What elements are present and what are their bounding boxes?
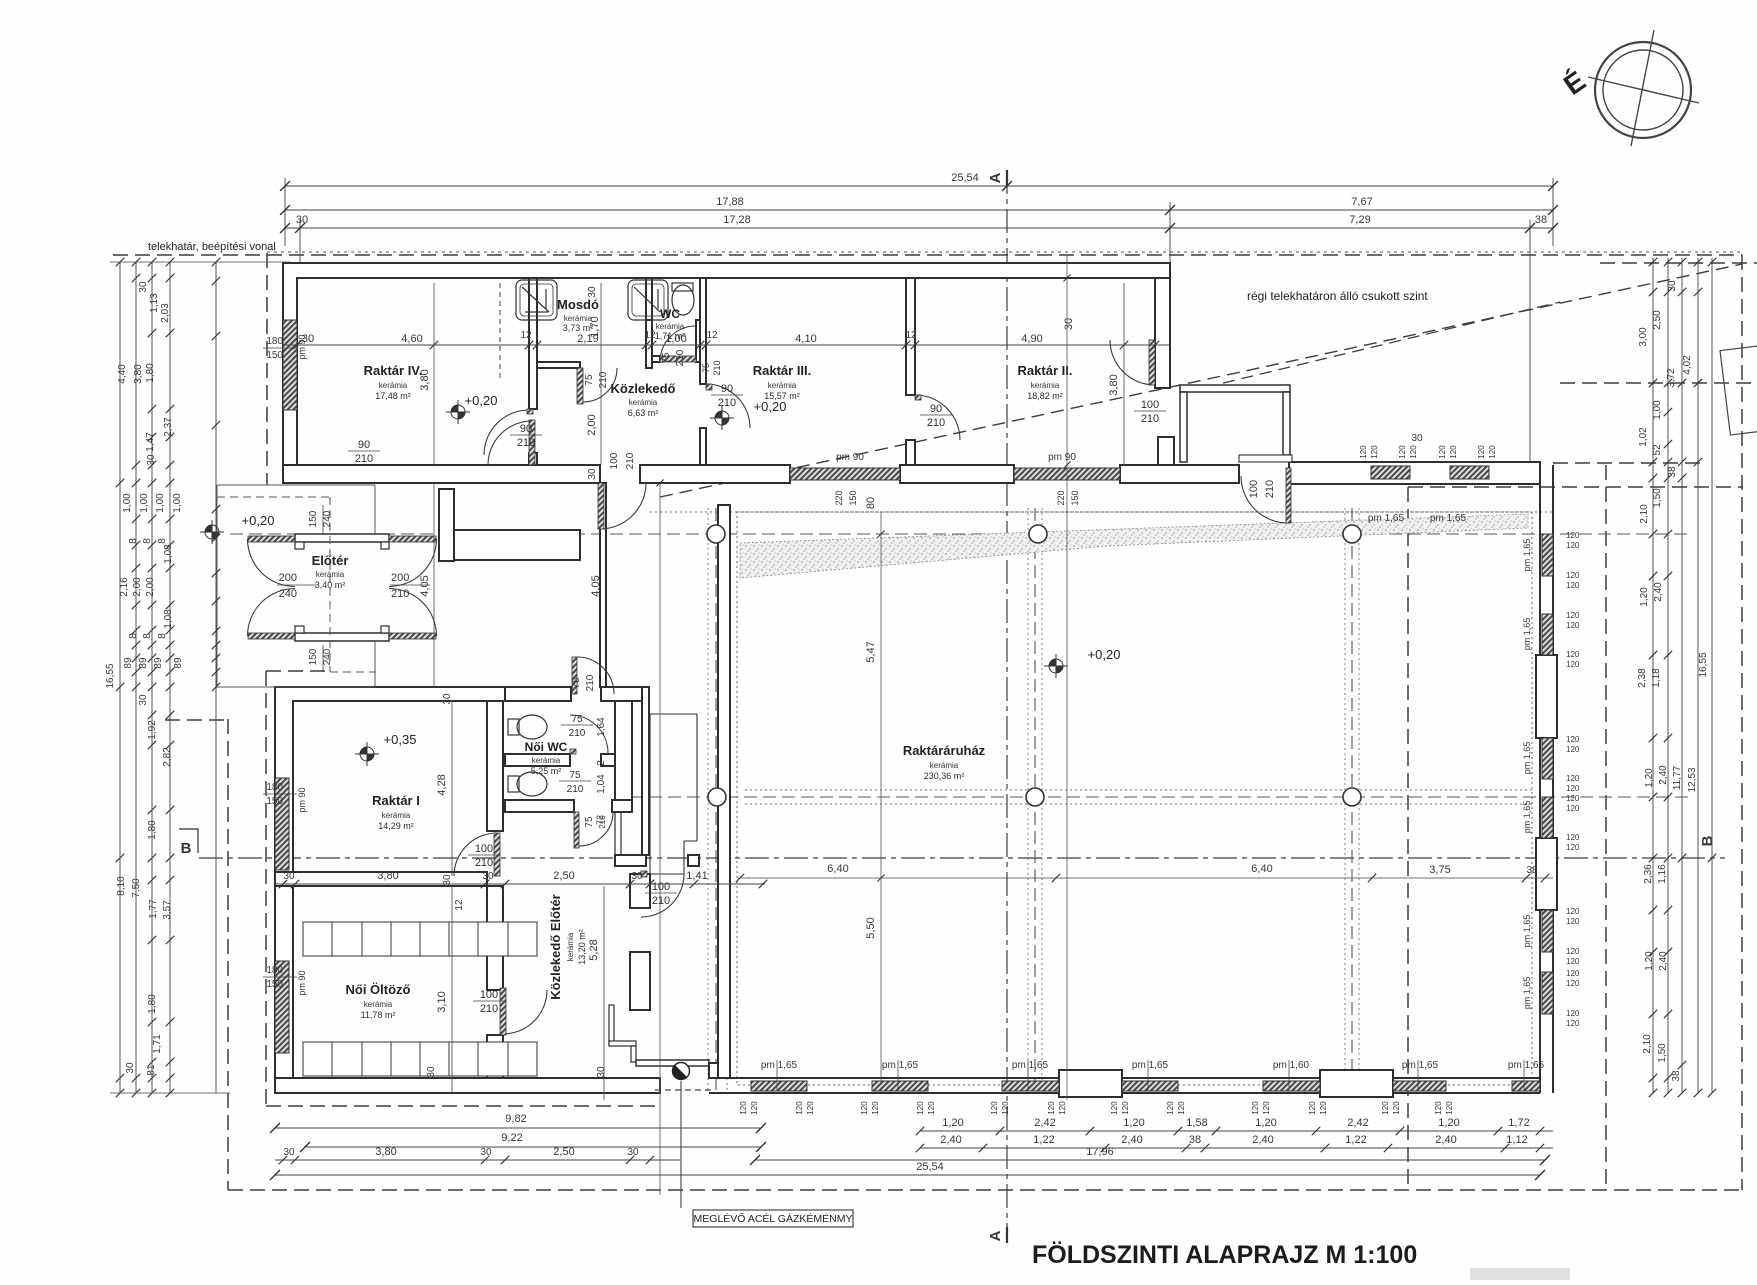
svg-text:pm 1,65: pm 1,65 — [1522, 915, 1532, 948]
svg-text:7,67: 7,67 — [1351, 196, 1372, 208]
svg-text:+0,20: +0,20 — [1088, 647, 1121, 662]
svg-text:Közlekedő Előtér: Közlekedő Előtér — [548, 894, 563, 999]
svg-text:2,42: 2,42 — [1034, 1117, 1055, 1129]
svg-text:120: 120 — [1566, 907, 1580, 916]
svg-text:12: 12 — [454, 899, 465, 911]
svg-text:9,22: 9,22 — [501, 1132, 522, 1144]
svg-text:75: 75 — [569, 770, 581, 781]
svg-text:30: 30 — [1667, 280, 1678, 292]
svg-text:120: 120 — [1566, 735, 1580, 744]
svg-text:3,80: 3,80 — [1108, 374, 1120, 395]
svg-text:230,36 m²: 230,36 m² — [924, 771, 965, 781]
svg-text:1,77: 1,77 — [148, 899, 159, 919]
svg-text:30: 30 — [283, 871, 295, 882]
svg-text:2,16: 2,16 — [119, 577, 130, 597]
svg-text:kerámia: kerámia — [930, 761, 959, 770]
svg-text:4,05: 4,05 — [590, 575, 602, 596]
svg-text:75: 75 — [661, 352, 672, 364]
svg-text:75: 75 — [571, 714, 583, 725]
svg-text:90: 90 — [721, 383, 733, 395]
svg-text:120: 120 — [1110, 1101, 1119, 1115]
svg-text:1,20: 1,20 — [942, 1117, 963, 1129]
svg-text:2,00: 2,00 — [586, 414, 598, 435]
svg-text:210: 210 — [598, 815, 607, 829]
svg-text:1,92: 1,92 — [147, 720, 158, 740]
svg-text:11,77: 11,77 — [1672, 765, 1683, 790]
svg-text:17,88: 17,88 — [716, 196, 744, 208]
svg-text:1,22: 1,22 — [1345, 1134, 1366, 1146]
svg-text:120: 120 — [860, 1101, 869, 1115]
svg-text:120: 120 — [1566, 621, 1580, 630]
svg-text:180: 180 — [266, 336, 283, 347]
svg-text:240: 240 — [322, 510, 333, 527]
svg-text:12: 12 — [905, 330, 917, 341]
svg-text:5,47: 5,47 — [865, 641, 877, 662]
svg-text:30: 30 — [426, 1066, 437, 1078]
svg-text:120: 120 — [1566, 650, 1580, 659]
svg-text:180: 180 — [266, 782, 283, 793]
svg-text:3,75: 3,75 — [1429, 864, 1450, 876]
svg-text:1,50: 1,50 — [1652, 488, 1663, 508]
svg-text:kerámia: kerámia — [532, 756, 561, 765]
svg-text:Közlekedő: Közlekedő — [610, 381, 675, 396]
svg-text:210: 210 — [1264, 480, 1276, 498]
svg-text:200: 200 — [279, 572, 297, 584]
svg-text:Raktár II.: Raktár II. — [1018, 363, 1073, 378]
svg-text:pm 1,60: pm 1,60 — [1273, 1060, 1310, 1071]
svg-text:120: 120 — [1566, 957, 1580, 966]
svg-text:16,55: 16,55 — [1698, 652, 1709, 677]
svg-text:120: 120 — [1566, 917, 1580, 926]
svg-text:120: 120 — [1566, 571, 1580, 580]
svg-text:1,13: 1,13 — [149, 293, 160, 313]
svg-text:Raktáráruház: Raktáráruház — [903, 743, 986, 758]
svg-text:30: 30 — [480, 1147, 492, 1158]
svg-text:7,50: 7,50 — [131, 878, 142, 898]
svg-text:Előtér: Előtér — [312, 553, 349, 568]
svg-text:120: 120 — [1449, 445, 1458, 459]
svg-text:210: 210 — [480, 1003, 498, 1015]
svg-text:240: 240 — [322, 648, 333, 665]
svg-text:B: B — [181, 840, 192, 857]
svg-text:90: 90 — [520, 423, 532, 435]
svg-text:Női Öltöző: Női Öltöző — [346, 982, 411, 997]
svg-text:8: 8 — [142, 538, 153, 544]
svg-text:2,40: 2,40 — [940, 1134, 961, 1146]
svg-text:1,20: 1,20 — [1438, 1117, 1459, 1129]
svg-text:150: 150 — [1070, 490, 1080, 505]
svg-text:210: 210 — [652, 895, 670, 907]
svg-text:1,71: 1,71 — [152, 1034, 163, 1054]
svg-text:+0,20: +0,20 — [465, 393, 498, 408]
svg-text:120: 120 — [916, 1101, 925, 1115]
svg-text:2,40: 2,40 — [1435, 1134, 1456, 1146]
svg-text:120: 120 — [1001, 1101, 1010, 1115]
svg-text:2,40: 2,40 — [1121, 1134, 1142, 1146]
svg-text:38: 38 — [1526, 865, 1538, 876]
svg-text:15,57 m²: 15,57 m² — [764, 391, 800, 401]
svg-text:75: 75 — [701, 363, 711, 373]
svg-text:1,50: 1,50 — [1657, 1043, 1668, 1063]
svg-text:180: 180 — [266, 965, 283, 976]
svg-text:120: 120 — [1566, 611, 1580, 620]
svg-text:1,00: 1,00 — [1652, 400, 1663, 420]
svg-text:120: 120 — [1566, 833, 1580, 842]
svg-text:kerámia: kerámia — [629, 398, 658, 407]
svg-text:1,20: 1,20 — [1123, 1117, 1144, 1129]
svg-text:14,29 m²: 14,29 m² — [378, 821, 414, 831]
svg-text:25,54: 25,54 — [916, 1161, 944, 1173]
svg-text:30: 30 — [138, 281, 149, 293]
svg-text:210: 210 — [517, 437, 535, 449]
svg-text:1,58: 1,58 — [1186, 1117, 1207, 1129]
svg-text:kerámia: kerámia — [656, 322, 685, 331]
svg-text:pm 1,65: pm 1,65 — [1522, 539, 1532, 572]
svg-text:2,40: 2,40 — [1658, 951, 1669, 971]
svg-text:150: 150 — [266, 979, 283, 990]
svg-text:3,57: 3,57 — [162, 900, 173, 920]
svg-text:120: 120 — [1566, 794, 1580, 803]
svg-text:120: 120 — [1445, 1101, 1454, 1115]
svg-text:75: 75 — [584, 374, 595, 386]
svg-text:30: 30 — [1063, 318, 1075, 330]
svg-text:1,16: 1,16 — [1657, 864, 1668, 884]
svg-text:30: 30 — [125, 1062, 136, 1074]
svg-text:210: 210 — [718, 397, 736, 409]
svg-text:210: 210 — [569, 728, 586, 739]
svg-text:1,80: 1,80 — [147, 820, 158, 840]
svg-text:210: 210 — [585, 674, 596, 691]
svg-text:120: 120 — [1409, 445, 1418, 459]
svg-text:MEGLÉVŐ ACÉL GÁZKÉMÉNMY: MEGLÉVŐ ACÉL GÁZKÉMÉNMY — [694, 1211, 853, 1225]
svg-text:120: 120 — [1434, 1101, 1443, 1115]
svg-text:150: 150 — [308, 510, 319, 527]
svg-text:4,90: 4,90 — [1021, 333, 1042, 345]
svg-text:4,28: 4,28 — [436, 774, 448, 795]
svg-text:80: 80 — [865, 497, 877, 509]
svg-text:89: 89 — [173, 657, 184, 669]
svg-text:30: 30 — [596, 1066, 607, 1078]
svg-text:pm 90: pm 90 — [836, 452, 864, 463]
svg-text:200: 200 — [391, 572, 409, 584]
svg-text:A: A — [987, 172, 1004, 183]
svg-text:120: 120 — [927, 1101, 936, 1115]
svg-text:120: 120 — [1262, 1101, 1271, 1115]
svg-text:pm 1,65: pm 1,65 — [1430, 513, 1467, 524]
svg-text:Raktár I: Raktár I — [372, 793, 420, 808]
svg-text:210: 210 — [625, 452, 636, 469]
svg-text:pm 90: pm 90 — [297, 787, 307, 812]
svg-text:120: 120 — [1566, 969, 1580, 978]
svg-text:1,20: 1,20 — [1644, 951, 1655, 971]
svg-text:75: 75 — [571, 677, 582, 689]
svg-text:2,42: 2,42 — [1347, 1117, 1368, 1129]
svg-text:1,18: 1,18 — [1651, 668, 1662, 688]
svg-text:1,00: 1,00 — [665, 333, 686, 345]
svg-text:38: 38 — [1671, 1070, 1682, 1082]
svg-text:120: 120 — [1251, 1101, 1260, 1115]
svg-text:5,25 m²: 5,25 m² — [531, 766, 562, 776]
svg-text:Női WC: Női WC — [525, 740, 568, 754]
svg-text:A: A — [987, 1230, 1004, 1241]
svg-text:220: 220 — [834, 490, 844, 505]
svg-text:52: 52 — [1652, 444, 1663, 456]
svg-text:17,48 m²: 17,48 m² — [375, 391, 411, 401]
svg-text:150: 150 — [266, 350, 283, 361]
svg-text:Mosdó: Mosdó — [557, 297, 599, 312]
svg-text:210: 210 — [598, 371, 609, 388]
svg-text:150: 150 — [308, 648, 319, 665]
svg-text:150: 150 — [848, 490, 858, 505]
svg-text:120: 120 — [1398, 445, 1407, 459]
svg-text:pm 90: pm 90 — [1048, 452, 1076, 463]
svg-text:pm 1,65: pm 1,65 — [1522, 742, 1532, 775]
svg-text:8: 8 — [157, 538, 168, 544]
svg-text:120: 120 — [1566, 531, 1580, 540]
svg-text:1,00: 1,00 — [139, 493, 150, 513]
svg-text:kerámia: kerámia — [379, 381, 408, 390]
svg-text:30: 30 — [296, 214, 308, 226]
svg-text:pm 1,65: pm 1,65 — [882, 1060, 919, 1071]
svg-text:kerámia: kerámia — [382, 811, 411, 820]
svg-text:6,40: 6,40 — [827, 863, 848, 875]
svg-text:pm 1,65: pm 1,65 — [1522, 618, 1532, 651]
svg-text:90: 90 — [930, 403, 942, 415]
svg-text:120: 120 — [1566, 979, 1580, 988]
svg-text:1,00: 1,00 — [122, 493, 133, 513]
svg-text:Raktár III.: Raktár III. — [753, 363, 812, 378]
svg-text:120: 120 — [1566, 745, 1580, 754]
svg-text:2,00: 2,00 — [132, 577, 143, 597]
svg-text:120: 120 — [1308, 1101, 1317, 1115]
svg-text:Raktár IV.: Raktár IV. — [364, 363, 423, 378]
svg-text:120: 120 — [1047, 1101, 1056, 1115]
svg-text:12: 12 — [706, 330, 718, 341]
svg-text:120: 120 — [1566, 1009, 1580, 1018]
svg-text:120: 120 — [1121, 1101, 1130, 1115]
svg-text:89: 89 — [123, 657, 134, 669]
svg-text:30: 30 — [587, 286, 598, 298]
svg-text:2,50: 2,50 — [553, 1146, 574, 1158]
svg-text:220: 220 — [1056, 490, 1066, 505]
svg-text:pm 1,65: pm 1,65 — [761, 1060, 798, 1071]
svg-text:210: 210 — [1141, 413, 1159, 425]
svg-text:120: 120 — [1488, 445, 1497, 459]
svg-text:120: 120 — [1438, 445, 1447, 459]
svg-text:120: 120 — [1566, 660, 1580, 669]
svg-text:38: 38 — [1535, 214, 1547, 226]
svg-text:120: 120 — [1392, 1101, 1401, 1115]
svg-text:11,78 m²: 11,78 m² — [361, 1010, 396, 1020]
svg-text:150: 150 — [266, 796, 283, 807]
svg-text:3,10: 3,10 — [436, 991, 448, 1012]
svg-text:7,29: 7,29 — [1349, 214, 1370, 226]
svg-text:120: 120 — [1477, 445, 1486, 459]
svg-text:120: 120 — [806, 1101, 815, 1115]
svg-text:1,00: 1,00 — [172, 493, 183, 513]
svg-text:90: 90 — [358, 439, 370, 451]
svg-text:210: 210 — [675, 349, 686, 366]
svg-text:1,20: 1,20 — [1255, 1117, 1276, 1129]
svg-text:pm 90: pm 90 — [297, 970, 307, 995]
svg-text:17,28: 17,28 — [723, 214, 751, 226]
svg-text:pm 1,65: pm 1,65 — [1132, 1060, 1169, 1071]
svg-text:kerámia: kerámia — [364, 1000, 393, 1009]
svg-text:3,80: 3,80 — [375, 1146, 396, 1158]
svg-text:120: 120 — [1058, 1101, 1067, 1115]
svg-text:1,64: 1,64 — [596, 717, 607, 737]
svg-text:FÖLDSZINTI ALAPRAJZ M 1:100: FÖLDSZINTI ALAPRAJZ M 1:100 — [1032, 1240, 1417, 1269]
svg-text:120: 120 — [739, 1101, 748, 1115]
svg-text:WC: WC — [660, 307, 680, 321]
svg-text:kerámia: kerámia — [566, 932, 575, 961]
svg-text:3,80: 3,80 — [133, 364, 144, 384]
svg-text:120: 120 — [1370, 445, 1379, 459]
svg-text:210: 210 — [391, 588, 409, 600]
svg-text:pm 1,65: pm 1,65 — [1402, 1060, 1439, 1071]
svg-text:120: 120 — [990, 1101, 999, 1115]
svg-text:kerámia: kerámia — [1031, 381, 1060, 390]
svg-text:6,40: 6,40 — [1251, 863, 1272, 875]
svg-text:4,05: 4,05 — [419, 575, 431, 596]
svg-text:30: 30 — [138, 694, 149, 706]
svg-text:75: 75 — [584, 816, 595, 828]
svg-text:89: 89 — [153, 657, 164, 669]
svg-text:2,40: 2,40 — [1653, 582, 1664, 602]
svg-text:2,82: 2,82 — [162, 747, 173, 767]
svg-text:2,10: 2,10 — [1639, 504, 1650, 524]
svg-text:12,53: 12,53 — [1687, 767, 1698, 792]
svg-text:2,40: 2,40 — [1658, 765, 1669, 785]
svg-text:8,10: 8,10 — [116, 876, 127, 896]
svg-text:4,60: 4,60 — [401, 333, 422, 345]
svg-text:30: 30 — [1411, 433, 1423, 444]
svg-text:2,00: 2,00 — [145, 577, 156, 597]
svg-text:3,80: 3,80 — [377, 870, 398, 882]
svg-text:+0,35: +0,35 — [384, 732, 417, 747]
svg-text:120: 120 — [1566, 784, 1580, 793]
svg-text:4,10: 4,10 — [795, 333, 816, 345]
svg-text:5,50: 5,50 — [865, 917, 877, 938]
svg-text:1,80: 1,80 — [145, 363, 156, 383]
svg-text:30: 30 — [283, 1147, 295, 1158]
svg-text:100: 100 — [609, 452, 620, 469]
svg-text:1,20: 1,20 — [1644, 768, 1655, 788]
svg-text:30: 30 — [442, 693, 453, 705]
svg-text:pm 90: pm 90 — [297, 334, 307, 359]
svg-text:120: 120 — [1566, 843, 1580, 852]
svg-text:régi telekhatáron álló csukott: régi telekhatáron álló csukott szint — [1247, 289, 1428, 303]
svg-text:120: 120 — [1566, 947, 1580, 956]
svg-text:1,22: 1,22 — [1033, 1134, 1054, 1146]
svg-text:2,50: 2,50 — [553, 870, 574, 882]
svg-text:1,02: 1,02 — [1638, 427, 1649, 447]
svg-text:38: 38 — [1667, 466, 1678, 478]
svg-text:2,40: 2,40 — [1252, 1134, 1273, 1146]
svg-text:100: 100 — [652, 881, 670, 893]
svg-text:12: 12 — [644, 330, 656, 341]
svg-text:120: 120 — [1566, 1019, 1580, 1028]
svg-text:100: 100 — [1141, 399, 1159, 411]
svg-text:120: 120 — [1566, 581, 1580, 590]
svg-text:pm 1,65: pm 1,65 — [1508, 1060, 1545, 1071]
svg-text:38: 38 — [1189, 1134, 1201, 1146]
svg-text:25,54: 25,54 — [951, 172, 979, 184]
svg-text:2,03: 2,03 — [160, 303, 171, 323]
svg-text:pm 1,65: pm 1,65 — [1012, 1060, 1049, 1071]
svg-text:120: 120 — [1566, 541, 1580, 550]
svg-text:4,02: 4,02 — [1682, 355, 1693, 375]
svg-text:2,37: 2,37 — [163, 417, 174, 437]
svg-text:1,80: 1,80 — [147, 994, 158, 1014]
svg-text:13,20 m²: 13,20 m² — [577, 929, 587, 965]
svg-text:2,10: 2,10 — [1642, 1034, 1653, 1054]
svg-text:30: 30 — [442, 874, 453, 886]
svg-text:120: 120 — [1381, 1101, 1390, 1115]
svg-text:210: 210 — [712, 360, 722, 375]
svg-text:100: 100 — [480, 989, 498, 1001]
svg-text:2,50: 2,50 — [1652, 310, 1663, 330]
svg-text:1,08: 1,08 — [163, 609, 174, 629]
svg-text:1,20: 1,20 — [1639, 587, 1650, 607]
svg-text:16,55: 16,55 — [105, 663, 116, 688]
svg-text:89: 89 — [138, 657, 149, 669]
svg-text:240: 240 — [279, 588, 297, 600]
svg-text:210: 210 — [475, 857, 493, 869]
svg-text:1,72: 1,72 — [1508, 1117, 1529, 1129]
svg-text:5,28: 5,28 — [588, 939, 600, 960]
svg-text:120: 120 — [1319, 1101, 1328, 1115]
svg-text:18,82 m²: 18,82 m² — [1027, 391, 1063, 401]
svg-text:kerámia: kerámia — [768, 381, 797, 390]
svg-text:8: 8 — [128, 633, 139, 639]
svg-text:2: 2 — [596, 760, 607, 766]
svg-text:B: B — [1699, 835, 1716, 846]
svg-text:100: 100 — [1248, 480, 1260, 498]
svg-text:30: 30 — [587, 468, 598, 480]
svg-text:120: 120 — [795, 1101, 804, 1115]
svg-text:120: 120 — [1166, 1101, 1175, 1115]
svg-text:1,70: 1,70 — [589, 316, 601, 337]
svg-text:30: 30 — [146, 454, 157, 466]
svg-text:3,40 m²: 3,40 m² — [315, 580, 346, 590]
svg-text:3,00: 3,00 — [1638, 327, 1649, 347]
svg-text:120: 120 — [1177, 1101, 1186, 1115]
svg-text:210: 210 — [567, 784, 584, 795]
svg-text:2,38: 2,38 — [1637, 668, 1648, 688]
svg-text:210: 210 — [927, 417, 945, 429]
svg-text:1,04: 1,04 — [596, 774, 607, 794]
svg-text:3,80: 3,80 — [419, 369, 431, 390]
svg-text:9,82: 9,82 — [505, 1113, 526, 1125]
svg-text:+0,20: +0,20 — [242, 513, 275, 528]
svg-text:pm 1,65: pm 1,65 — [1522, 801, 1532, 834]
svg-text:12: 12 — [520, 330, 532, 341]
svg-text:6,63 m²: 6,63 m² — [628, 408, 659, 418]
svg-text:4,40: 4,40 — [117, 364, 128, 384]
svg-text:120: 120 — [1359, 445, 1368, 459]
svg-text:pm 1,65: pm 1,65 — [1368, 513, 1405, 524]
svg-text:2,36: 2,36 — [1643, 864, 1654, 884]
svg-text:telekhatár, beépítési vonal: telekhatár, beépítési vonal — [148, 241, 276, 253]
svg-text:+0,20: +0,20 — [754, 399, 787, 414]
svg-text:pm 1,65: pm 1,65 — [1522, 977, 1532, 1010]
svg-text:1,00: 1,00 — [155, 493, 166, 513]
svg-text:3,72: 3,72 — [1666, 368, 1677, 388]
svg-text:120: 120 — [871, 1101, 880, 1115]
svg-text:100: 100 — [475, 843, 493, 855]
svg-text:120: 120 — [1566, 774, 1580, 783]
